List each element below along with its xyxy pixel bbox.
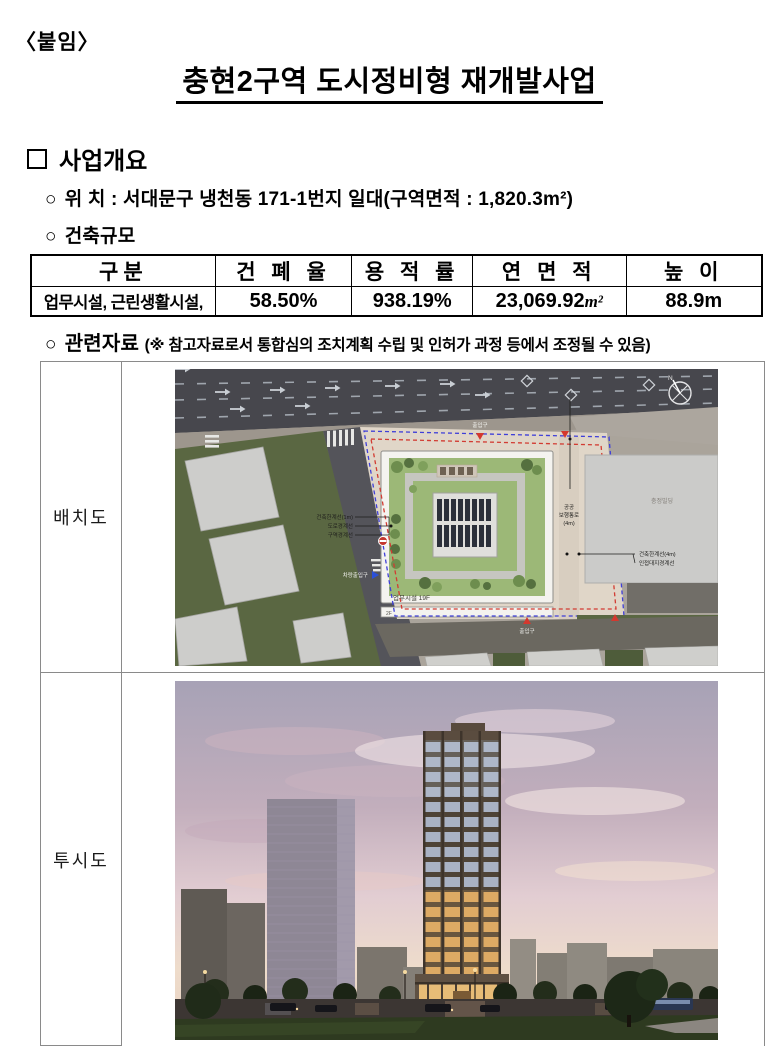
col-header-height: 높 이 — [626, 255, 762, 287]
location-line: ○위 치 : 서대문구 냉천동 171-1번지 일대(구역면적 : 1,820.… — [45, 184, 573, 211]
col-header-floor-area: 연 면 적 — [473, 255, 627, 287]
floor-area-unit: m² — [585, 292, 603, 311]
svg-text:차량출입구: 차량출입구 — [343, 571, 368, 579]
svg-text:(4m): (4m) — [563, 521, 574, 527]
cell-floor-area: 23,069.92m² — [473, 287, 627, 317]
circle-marker-icon: ○ — [45, 226, 57, 247]
perspective-cell — [122, 673, 764, 1046]
circle-marker-icon: ○ — [45, 334, 57, 355]
related-data-line: ○관련자료 (※ 참고자료로서 통합심의 조치계획 수립 및 인허가 과정 등에… — [45, 327, 650, 356]
main-tower — [415, 723, 509, 1010]
svg-text:구역경계선: 구역경계선 — [328, 531, 353, 539]
cell-coverage: 58.50% — [215, 287, 352, 317]
bottom-road — [375, 616, 718, 666]
col-header-far: 용 적 률 — [352, 255, 473, 287]
svg-text:출입구: 출입구 — [472, 421, 487, 429]
svg-text:인접대지경계선: 인접대지경계선 — [639, 559, 674, 567]
svg-text:2F: 2F — [386, 611, 392, 617]
perspective-row: 투시도 — [41, 673, 764, 1046]
site-plan-label: 배치도 — [41, 362, 122, 672]
scale-heading-line: ○건축규모 — [45, 221, 135, 248]
svg-text:공공: 공공 — [564, 504, 574, 511]
svg-text:업무시설 19F: 업무시설 19F — [393, 594, 430, 602]
attachment-label: 〈붙임〉 — [15, 26, 100, 56]
svg-text:출입구: 출입구 — [519, 627, 534, 635]
svg-text:N: N — [668, 375, 673, 382]
perspective-label: 투시도 — [41, 673, 122, 1046]
site-plan-cell: 건축한계선(1m) 도로경계선 구역경계선 건축한계선(4m) 인접대지경계선 … — [122, 362, 764, 672]
table-header-row: 구분 건 폐 율 용 적 률 연 면 적 높 이 — [31, 255, 762, 287]
svg-text:도로경계선: 도로경계선 — [328, 522, 353, 530]
svg-text:보행통로: 보행통로 — [559, 511, 579, 519]
cell-gubun: 업무시설, 근린생활시설, — [31, 287, 215, 317]
svg-text:건축한계선(4m): 건축한계선(4m) — [639, 550, 676, 558]
building-scale-table: 구분 건 폐 율 용 적 률 연 면 적 높 이 업무시설, 근린생활시설, 5… — [30, 254, 763, 317]
svg-text:건축한계선(1m): 건축한계선(1m) — [316, 513, 353, 521]
cell-height: 88.9m — [626, 287, 762, 317]
related-note: (※ 참고자료로서 통합심의 조치계획 수립 및 인허가 과정 등에서 조정될 … — [145, 337, 651, 354]
document-page: 〈붙임〉 충현2구역 도시정비형 재개발사업 사업개요 ○위 치 : 서대문구 … — [0, 0, 779, 1063]
square-marker-icon — [27, 149, 47, 169]
page-title: 충현2구역 도시정비형 재개발사업 — [0, 58, 779, 100]
site-plan-row: 배치도 — [41, 362, 764, 673]
perspective-image — [175, 681, 718, 1040]
svg-text:충정빌딩: 충정빌딩 — [651, 497, 673, 505]
table-data-row: 업무시설, 근린생활시설, 58.50% 938.19% 23,069.92m²… — [31, 287, 762, 317]
col-header-coverage: 건 폐 율 — [215, 255, 352, 287]
circle-marker-icon: ○ — [45, 189, 57, 210]
site-plan-image: 건축한계선(1m) 도로경계선 구역경계선 건축한계선(4m) 인접대지경계선 … — [175, 369, 718, 666]
figure-table: 배치도 — [40, 361, 765, 1046]
col-header-gubun: 구분 — [31, 255, 215, 287]
section-overview-heading: 사업개요 — [27, 141, 147, 176]
cell-far: 938.19% — [352, 287, 473, 317]
